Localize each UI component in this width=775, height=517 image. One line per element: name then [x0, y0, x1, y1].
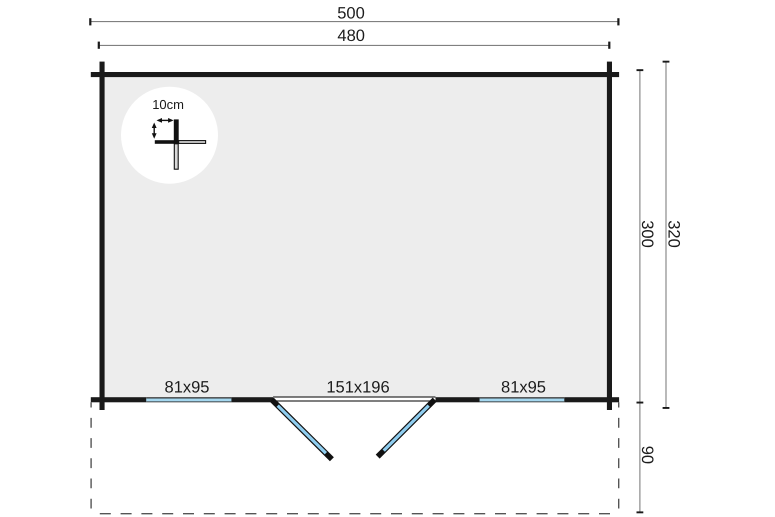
svg-text:300: 300	[638, 220, 656, 248]
svg-text:81x95: 81x95	[165, 379, 210, 397]
svg-text:151x196: 151x196	[326, 379, 389, 397]
svg-text:320: 320	[664, 220, 682, 248]
svg-text:480: 480	[337, 27, 365, 45]
svg-text:500: 500	[337, 5, 365, 23]
svg-text:81x95: 81x95	[501, 379, 546, 397]
svg-text:10cm: 10cm	[152, 97, 184, 112]
svg-text:90: 90	[638, 446, 656, 464]
